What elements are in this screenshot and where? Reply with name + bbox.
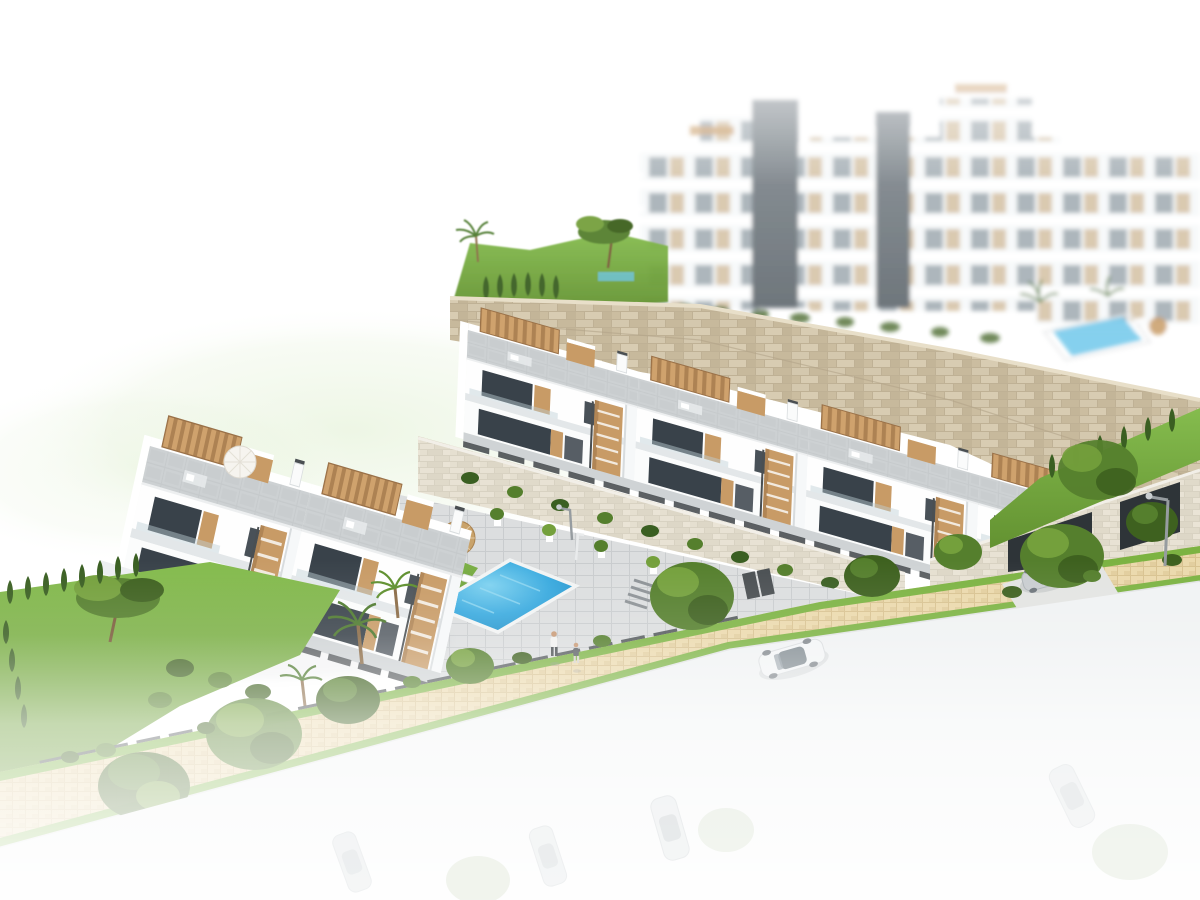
top-fade-overlay bbox=[560, 0, 1200, 185]
architectural-render bbox=[0, 0, 1200, 900]
render-canvas bbox=[0, 0, 1200, 900]
road-fade-overlay bbox=[0, 560, 1200, 900]
garden-tree bbox=[1058, 440, 1138, 500]
